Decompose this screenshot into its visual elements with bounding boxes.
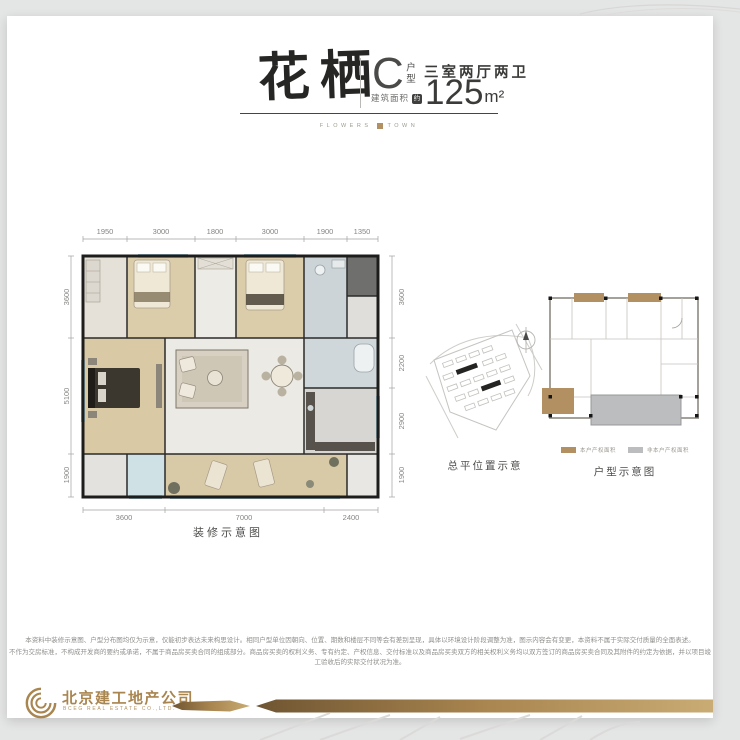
decor-curves-top-right [580,0,740,16]
header-divider [360,58,361,108]
site-plan-caption: 总平位置示意 [420,458,550,473]
floor-plan-svg: 1950 3000 1800 3000 1900 1350 3600 5100 … [58,226,408,522]
legend-label-other: 非本户产权面积 [647,446,689,454]
site-roads [426,324,542,438]
svg-text:1900: 1900 [397,467,406,484]
legend-label-owned: 本户产权面积 [580,446,616,454]
disclaimer-line-1: 本资料中装修示意图、户型分布图均仅为示意，仅能初步表达未来构思设计。相同户型单位… [7,636,713,646]
floor-plan-caption: 装修示意图 [148,524,308,540]
decor-leaves-bottom [200,713,640,740]
company-logo-icon [24,686,58,720]
header-rule [240,113,498,114]
area-row: 建筑面积 约 125 m² [371,76,504,109]
dimension-lines-bottom: 3600 7000 2400 [83,507,378,522]
area-unit: m² [484,85,504,109]
svg-text:3000: 3000 [262,227,279,236]
svg-text:7000: 7000 [236,513,253,522]
svg-text:2400: 2400 [343,513,360,522]
svg-text:3600: 3600 [116,513,133,522]
highlighted-building-2 [481,380,502,392]
tagline-left: FLOWERS [320,123,372,129]
svg-text:1800: 1800 [207,227,224,236]
legend-item-other: 非本户产权面积 [628,446,689,454]
svg-text:3000: 3000 [153,227,170,236]
area-value: 125 [425,76,483,109]
svg-text:1350: 1350 [354,227,371,236]
brand-mark-icon [377,123,383,129]
dimension-lines-top: 1950 3000 1800 3000 1900 1350 [83,227,378,242]
svg-text:1900: 1900 [317,227,334,236]
project-title-calligraphy: 花栖 [257,44,369,114]
dimension-lines-right: 3600 2200 2900 1900 [389,256,406,497]
svg-text:3600: 3600 [397,289,406,306]
unit-plan-svg [540,292,710,452]
unit-plan-legend: 本户产权面积 非本户产权面积 [540,446,710,454]
svg-text:3600: 3600 [62,289,71,306]
legend-swatch-other [628,447,643,453]
approx-badge: 约 [412,94,422,104]
svg-text:5100: 5100 [62,388,71,405]
site-buildings [439,342,519,414]
brand-tagline: FLOWERS TOWN [240,123,498,129]
highlighted-building-1 [456,363,478,375]
unit-gray-area [591,395,681,425]
svg-text:1950: 1950 [97,227,114,236]
site-plan-svg [424,312,544,452]
legend-item-owned: 本户产权面积 [561,446,616,454]
tagline-right: TOWN [388,123,419,129]
company-name-en: BCEG REAL ESTATE CO.,LTD. [63,706,176,712]
disclaimer-line-2: 不作为交房标准，不构成开发商的要约或承诺，不属于商品房买卖合同的组成部分。商品房… [7,648,713,668]
svg-text:2200: 2200 [397,355,406,372]
area-label: 建筑面积 [371,92,409,104]
dimension-lines-left: 3600 5100 1900 [62,256,74,497]
svg-text:1900: 1900 [62,467,71,484]
legend-swatch-owned [561,447,576,453]
unit-plan-caption: 户型示意图 [540,464,710,479]
svg-text:2900: 2900 [397,413,406,430]
